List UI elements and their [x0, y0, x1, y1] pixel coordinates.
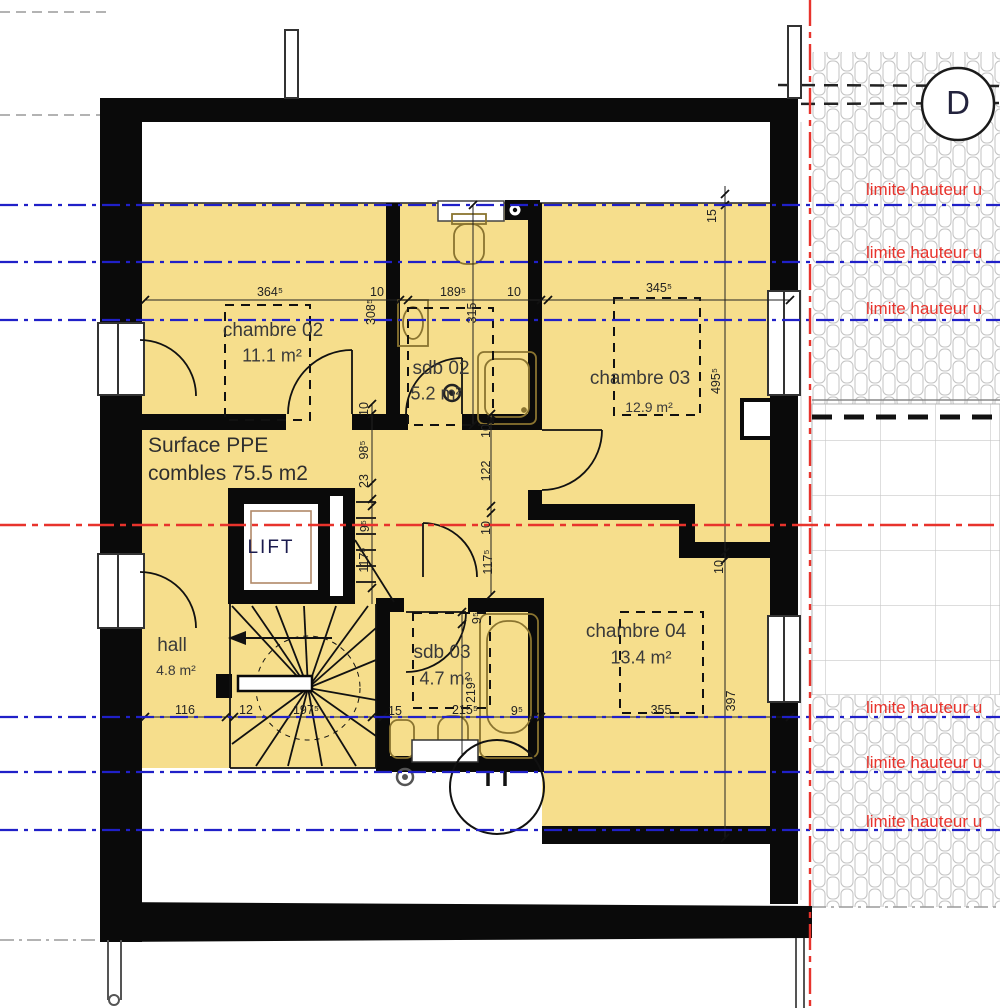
dim-label: 364⁵ [257, 285, 283, 299]
room-label-hall: hall [157, 635, 187, 657]
dim-label: 495⁵ [709, 368, 723, 394]
dim-label: 345⁵ [646, 281, 672, 295]
dim-label: 9⁵ [470, 612, 484, 624]
dim-label: 9⁵ [358, 520, 372, 532]
dim-label: 10 [507, 285, 521, 299]
room-label-sdb03: sdb 03 [413, 642, 470, 664]
chimney-flue [742, 400, 772, 438]
room-area-chambre02: 11.1 m² [242, 346, 302, 367]
dim-label: 10 [357, 402, 371, 416]
roof-hatch-lower [812, 695, 1000, 907]
dim-label: 117⁵ [357, 547, 371, 572]
dim-label: 215⁵ [452, 703, 478, 717]
surface-ppe-line2: combles 75.5 m2 [148, 462, 308, 486]
downpipes [108, 938, 804, 1008]
limit-height-label-3: limite hauteur u [866, 299, 982, 319]
dim-label: 10 [370, 285, 384, 299]
dim-label: 10 [479, 424, 493, 438]
dim-label: 315 [465, 303, 479, 324]
room-area-sdb02: 5.2 m² [410, 384, 461, 405]
dim-label: 9⁵ [511, 704, 523, 718]
dim-label: 10 [479, 521, 493, 535]
dim-label: 189⁵ [440, 285, 466, 299]
surface-ppe-line1: Surface PPE [148, 434, 268, 458]
section-marker-label: D [946, 84, 970, 122]
wall-posts [285, 26, 801, 98]
dim-label: 116 [175, 703, 195, 717]
room-label-sdb02: sdb 02 [412, 358, 469, 380]
floorplan-page: chambre 02 11.1 m² sdb 02 5.2 m² chambre… [0, 0, 1000, 1008]
dim-label: 23 [357, 474, 371, 488]
limit-height-label-2: limite hauteur u [866, 243, 982, 263]
room-area-chambre03: 12.9 m² [625, 399, 672, 415]
room-area-chambre04: 13.4 m² [610, 648, 671, 669]
dim-label: 308⁵ [364, 299, 378, 325]
room-area-sdb03: 4.7 m² [419, 669, 470, 690]
stair-handrail [238, 676, 312, 691]
room-area-hall: 4.8 m² [156, 662, 196, 678]
dim-label: 219⁵ [464, 677, 478, 703]
dim-label: 197⁵ [293, 703, 319, 717]
dim-label: 355 [651, 703, 672, 717]
limit-height-label-4: limite hauteur u [866, 698, 982, 718]
dim-label: 122 [479, 461, 493, 482]
dim-label: 397 [724, 691, 738, 712]
dim-label: 15 [388, 704, 402, 718]
floorplan-svg [0, 0, 1000, 1008]
dim-label: 98⁵ [357, 440, 371, 459]
dim-label: 15 [705, 209, 719, 223]
limit-height-label-6: limite hauteur u [866, 812, 982, 832]
limit-height-label-1: limite hauteur u [866, 180, 982, 200]
room-label-chambre03: chambre 03 [590, 368, 690, 390]
dim-label: 12 [239, 703, 253, 717]
room-label-chambre04: chambre 04 [586, 621, 686, 643]
room-label-chambre02: chambre 02 [223, 320, 323, 342]
terrace-grid [812, 404, 1000, 695]
limit-height-label-5: limite hauteur u [866, 753, 982, 773]
dim-label: 10 [712, 560, 726, 574]
lift-label: LIFT [247, 537, 294, 559]
dim-label: 117⁵ [481, 549, 495, 574]
